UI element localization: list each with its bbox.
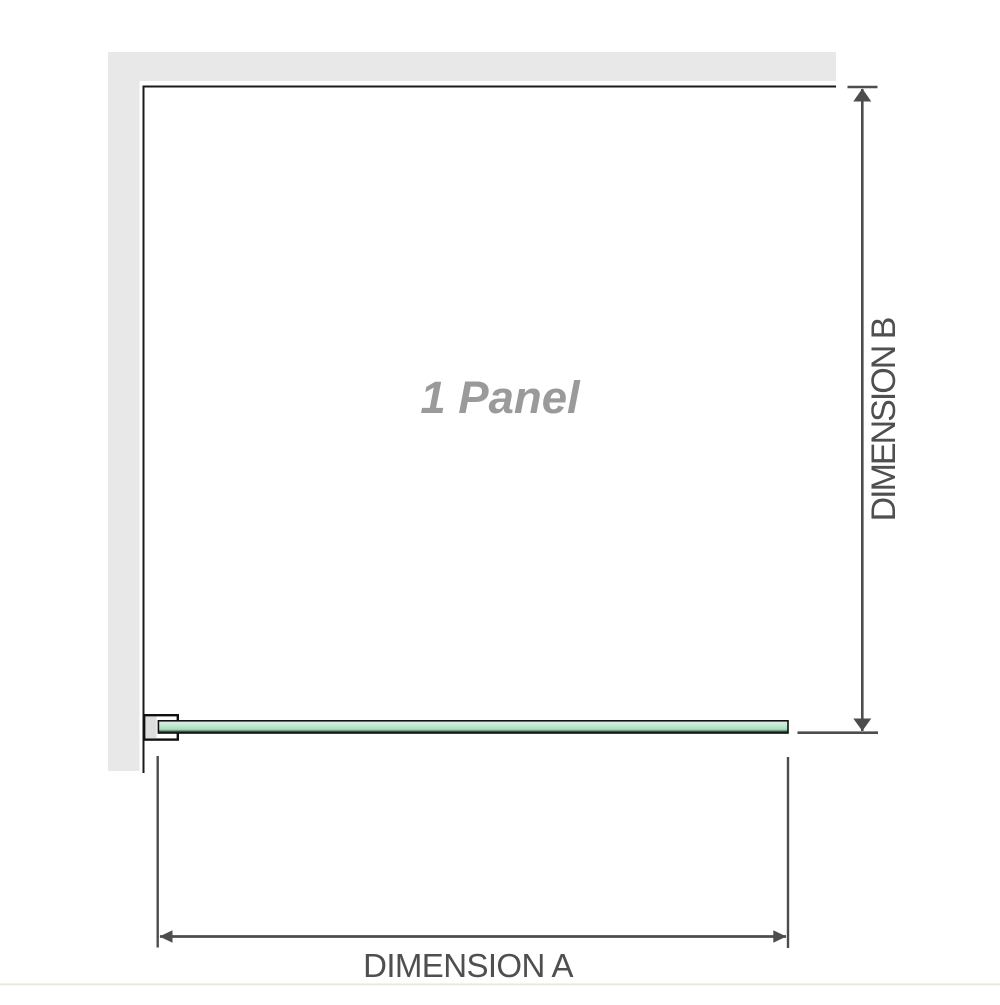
svg-text:DIMENSION B: DIMENSION B [865, 318, 903, 521]
svg-text:DIMENSION A: DIMENSION A [363, 947, 573, 984]
svg-text:1 Panel: 1 Panel [420, 372, 581, 423]
